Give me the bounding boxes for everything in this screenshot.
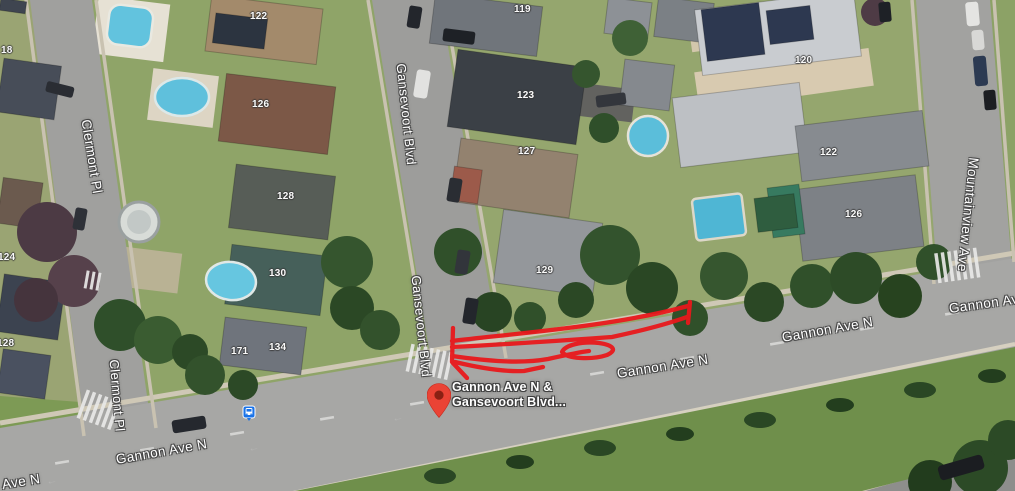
house-number-119: 119 xyxy=(514,4,531,15)
house-number-126-left: 126 xyxy=(252,99,269,110)
svg-text:←: ← xyxy=(247,441,260,455)
marker-label: Gannon Ave N & Gansevoort Blvd... xyxy=(452,380,566,409)
house-number-126-right: 126 xyxy=(845,209,862,220)
house-number-123: 123 xyxy=(517,90,534,101)
house-number-171: 171 xyxy=(231,346,248,357)
map-pin-icon[interactable] xyxy=(427,383,451,418)
satellite-map-canvas[interactable]: ← ← ← xyxy=(0,0,1015,491)
house-number-18: 18 xyxy=(1,45,13,56)
marker-label-line1: Gannon Ave N & xyxy=(452,380,566,395)
house-number-129: 129 xyxy=(536,265,553,276)
house-number-122-right: 122 xyxy=(820,147,837,158)
svg-text:←: ← xyxy=(45,474,58,488)
aerial-imagery: ← ← ← xyxy=(0,0,1015,491)
house-number-122-left: 122 xyxy=(250,11,267,22)
svg-text:←: ← xyxy=(391,411,404,425)
house-number-130: 130 xyxy=(269,268,286,279)
house-number-120: 120 xyxy=(795,55,812,66)
marker-label-line2: Gansevoort Blvd... xyxy=(452,395,566,410)
house-number-134: 134 xyxy=(269,342,286,353)
bus-stop-icon[interactable] xyxy=(242,405,256,423)
house-number-128-mid: 128 xyxy=(277,191,294,202)
house-number-124-edge: 124 xyxy=(0,252,15,263)
house-number-128-edge: 128 xyxy=(0,338,14,349)
house-number-127: 127 xyxy=(518,146,535,157)
